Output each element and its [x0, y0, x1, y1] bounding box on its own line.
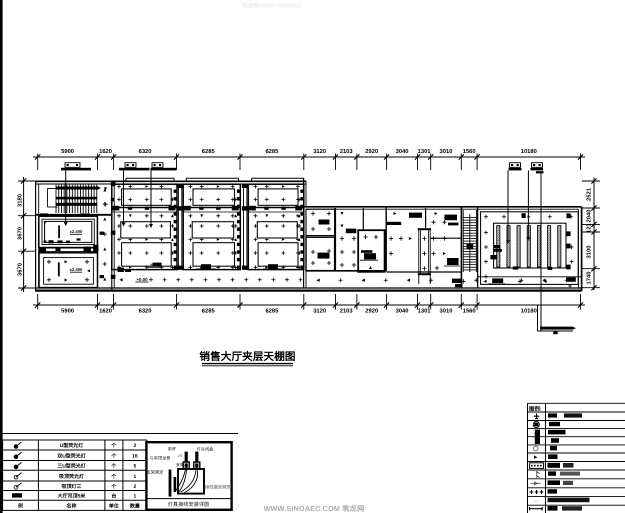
svg-text:3670: 3670: [17, 227, 24, 240]
svg-text:WWW.SINOAEC.COM 筑龙网: WWW.SINOAEC.COM 筑龙网: [264, 504, 365, 513]
svg-text:个: 个: [110, 442, 117, 449]
svg-text:单位: 单位: [109, 503, 119, 510]
svg-text:名称: 名称: [66, 503, 76, 510]
svg-text:6285: 6285: [265, 148, 279, 155]
svg-text:灯具接线安装详图: 灯具接线安装详图: [168, 501, 210, 508]
svg-text:±2.400: ±2.400: [70, 229, 83, 234]
svg-text:大厅吊顶5米: 大厅吊顶5米: [58, 493, 87, 500]
svg-text:例: 例: [18, 503, 23, 510]
svg-text:121: 121: [586, 223, 593, 233]
svg-text:灯头线盒: 灯头线盒: [197, 447, 215, 452]
svg-text:个: 个: [110, 452, 117, 459]
svg-text:销售大厅夹层天棚图: 销售大厅夹层天棚图: [199, 350, 295, 363]
svg-text:支架: 支架: [176, 462, 184, 467]
svg-text:+0.00: +0.00: [136, 277, 148, 282]
svg-text:双U型荧光灯: 双U型荧光灯: [57, 452, 86, 459]
svg-text:2: 2: [134, 484, 137, 490]
svg-text:图例:: 图例:: [529, 406, 542, 413]
svg-text:10180: 10180: [521, 148, 537, 155]
svg-text:6320: 6320: [139, 308, 152, 315]
svg-text:2040: 2040: [586, 210, 593, 223]
svg-text:吊杆: 吊杆: [168, 447, 177, 452]
svg-text:2920: 2920: [365, 308, 378, 315]
svg-text:···: ···: [534, 498, 539, 504]
svg-text:5900: 5900: [61, 308, 74, 315]
svg-text:2920: 2920: [365, 148, 378, 155]
svg-text:2103: 2103: [340, 148, 354, 155]
svg-text:1560: 1560: [463, 148, 476, 155]
svg-text:3040: 3040: [396, 308, 409, 315]
svg-text:1620: 1620: [99, 308, 112, 315]
svg-text:U型荧光灯: U型荧光灯: [60, 442, 84, 449]
svg-text:±2.400: ±2.400: [70, 267, 83, 272]
svg-text:6285: 6285: [202, 148, 216, 155]
svg-text:2521: 2521: [586, 187, 593, 201]
svg-text:个: 个: [110, 463, 117, 470]
svg-text:5: 5: [134, 464, 137, 470]
svg-text:3100: 3100: [586, 246, 593, 259]
svg-text:1: 1: [134, 474, 137, 480]
svg-text:与吊顶龙骨: 与吊顶龙骨: [150, 456, 171, 461]
svg-text:1301: 1301: [418, 148, 432, 155]
svg-text:10180: 10180: [521, 308, 537, 315]
svg-text:三U型荧光灯: 三U型荧光灯: [57, 463, 86, 470]
svg-text:吸顶灯三: 吸顶灯三: [61, 483, 81, 490]
svg-text:吸顶荧光灯: 吸顶荧光灯: [59, 473, 84, 480]
svg-text:支架固定: 支架固定: [147, 470, 165, 475]
svg-text:6285: 6285: [265, 308, 279, 315]
svg-text:筑龙网WWW.SINOAEC: 筑龙网WWW.SINOAEC: [242, 3, 301, 10]
svg-text:1740: 1740: [586, 272, 593, 285]
svg-text:3180: 3180: [17, 194, 24, 207]
svg-text:5900: 5900: [61, 148, 74, 155]
svg-text:3120: 3120: [313, 148, 326, 155]
svg-text:ZR: ZR: [178, 454, 183, 458]
svg-text:6320: 6320: [139, 148, 152, 155]
svg-text:台: 台: [111, 493, 116, 500]
svg-text:6285: 6285: [202, 308, 216, 315]
svg-text:3120: 3120: [313, 308, 326, 315]
svg-text:16: 16: [132, 453, 138, 459]
svg-text:数量: 数量: [129, 503, 140, 510]
svg-text:个: 个: [110, 483, 117, 490]
svg-text:个: 个: [110, 473, 117, 480]
svg-text:3670: 3670: [17, 263, 24, 276]
svg-text:3010: 3010: [440, 308, 453, 315]
svg-text:1560: 1560: [463, 308, 476, 315]
svg-text:1301: 1301: [418, 308, 432, 315]
svg-text:1620: 1620: [99, 148, 112, 155]
svg-text:2103: 2103: [340, 308, 354, 315]
svg-text:1: 1: [134, 494, 137, 500]
svg-text:2: 2: [134, 443, 137, 449]
svg-text:接线盒安装图: 接线盒安装图: [205, 485, 232, 490]
svg-text:3010: 3010: [440, 148, 453, 155]
svg-text:3040: 3040: [396, 148, 409, 155]
